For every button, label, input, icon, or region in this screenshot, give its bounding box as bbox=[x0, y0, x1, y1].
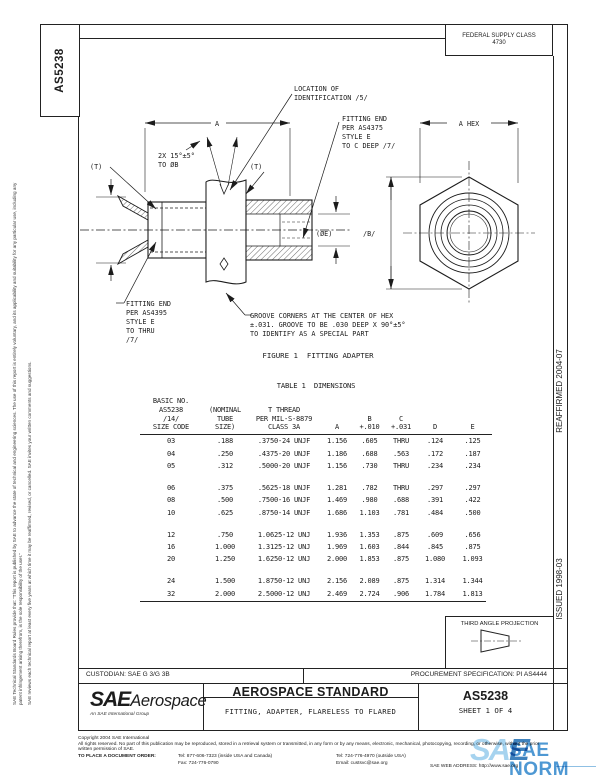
table-cell: 1.281 bbox=[320, 482, 354, 494]
third-angle-projection-box: THIRD ANGLE PROJECTION bbox=[445, 616, 553, 668]
table-cell: .656 bbox=[453, 529, 492, 541]
top-inner-rule bbox=[78, 38, 445, 39]
fitting-end-left-line5: /7/ bbox=[126, 336, 138, 344]
table-cell: 1.156 bbox=[320, 460, 354, 472]
federal-supply-class-box: FEDERAL SUPPLY CLASS 4730 bbox=[445, 24, 553, 56]
table-cell: .875 bbox=[385, 529, 417, 541]
table-cell: .234 bbox=[417, 460, 453, 472]
table-cell: 04 bbox=[140, 448, 202, 460]
table-header-col: A bbox=[320, 423, 354, 432]
table-row: 04.250.4375-20 UNJF1.186.688.563.172.187 bbox=[140, 448, 492, 460]
table-cell: 1.969 bbox=[320, 541, 354, 553]
table-cell: 1.813 bbox=[453, 588, 492, 600]
table-cell: .875 bbox=[385, 575, 417, 587]
table-cell: .375 bbox=[202, 482, 248, 494]
dim-t-right-label: (T) bbox=[250, 163, 262, 171]
title-block-top-rule bbox=[78, 668, 567, 669]
federal-supply-class-number: 4730 bbox=[446, 40, 552, 48]
table-cell: 2.000 bbox=[202, 588, 248, 600]
table-row: 06.375.5625-18 UNJF1.281.782THRU.297.297 bbox=[140, 482, 492, 494]
fax-number: Fax: 724-776-0790 bbox=[178, 761, 219, 767]
reaffirmed-label: REAFFIRMED 2004-07 bbox=[553, 312, 567, 470]
table-cell: THRU bbox=[385, 482, 417, 494]
dia-e-label: (ØE) bbox=[316, 230, 332, 238]
figure-caption: FIGURE 1 FITTING ADAPTER bbox=[262, 351, 374, 360]
table-header-col: D bbox=[417, 423, 453, 432]
table-cell: .688 bbox=[385, 494, 417, 506]
table-row: 05.312.5000-20 UNJF1.156.730THRU.234.234 bbox=[140, 460, 492, 472]
table-cell: 1.344 bbox=[453, 575, 492, 587]
table-header-col: (NOMINALTUBESIZE) bbox=[202, 406, 248, 432]
table-cell: 1.156 bbox=[320, 435, 354, 447]
table-group-gap bbox=[140, 566, 492, 576]
table-header-col: E bbox=[453, 423, 492, 432]
table-cell: 03 bbox=[140, 435, 202, 447]
chamfer-note-line2: TO ØB bbox=[158, 161, 178, 169]
aerospace-logo-text: Aerospace bbox=[130, 692, 206, 710]
dim-a-label: A bbox=[215, 120, 219, 128]
watermark-underline bbox=[556, 766, 596, 767]
table-cell: 2.724 bbox=[354, 588, 385, 600]
table-cell: 24 bbox=[140, 575, 202, 587]
table-cell: .844 bbox=[385, 541, 417, 553]
disclaimer-paragraph-1: SAE Technical Standards Board Rules prov… bbox=[12, 178, 23, 705]
table-cell: .906 bbox=[385, 588, 417, 600]
table-cell: .750 bbox=[202, 529, 248, 541]
table-cell: .391 bbox=[417, 494, 453, 506]
table-cell: .875 bbox=[385, 553, 417, 565]
standard-type-heading: AEROSPACE STANDARD bbox=[203, 685, 418, 699]
document-number: AS5238 bbox=[418, 689, 553, 703]
order-label: TO PLACE A DOCUMENT ORDER: bbox=[78, 754, 156, 760]
table-title: TABLE 1 DIMENSIONS bbox=[140, 381, 492, 390]
groove-note-line2: ±.031. GROOVE TO BE .030 DEEP X 90°±5° bbox=[250, 321, 406, 329]
dimensions-table-header-row: BASIC NO.AS5238/14/SIZE CODE(NOMINALTUBE… bbox=[140, 397, 492, 435]
doc-number-side-label: AS5238 bbox=[41, 25, 79, 116]
table-cell: .845 bbox=[417, 541, 453, 553]
table-cell: .188 bbox=[202, 435, 248, 447]
table-cell: 1.353 bbox=[354, 529, 385, 541]
table-cell: 12 bbox=[140, 529, 202, 541]
table-cell: 1.3125-12 UNJ bbox=[248, 541, 320, 553]
table-row: 201.2501.6250-12 UNJ2.0001.853.8751.0801… bbox=[140, 553, 492, 565]
fitting-end-left-line2: PER AS4395 bbox=[126, 309, 167, 317]
table-header-col: C+.031 bbox=[385, 415, 417, 433]
procurement-label: PROCUREMENT SPECIFICATION: PI AS4444 bbox=[303, 671, 547, 678]
table-cell: .172 bbox=[417, 448, 453, 460]
table-cell: .875 bbox=[453, 541, 492, 553]
table-cell: .187 bbox=[453, 448, 492, 460]
location-note-line1: LOCATION OF bbox=[294, 85, 339, 93]
table-cell: .688 bbox=[354, 448, 385, 460]
table-cell: 1.000 bbox=[202, 541, 248, 553]
tel-intl: Tel: 724-776-4970 (outside USA) bbox=[336, 754, 406, 760]
table-cell: 1.0625-12 UNJ bbox=[248, 529, 320, 541]
table-row: 322.0002.5000-12 UNJ2.4692.724.9061.7841… bbox=[140, 588, 492, 600]
table-cell: 32 bbox=[140, 588, 202, 600]
table-cell: 1.603 bbox=[354, 541, 385, 553]
table-cell: .500 bbox=[202, 494, 248, 506]
table-cell: .125 bbox=[453, 435, 492, 447]
table-cell: 1.186 bbox=[320, 448, 354, 460]
table-bottom-rule bbox=[140, 601, 486, 602]
table-cell: 2.5000-12 UNJ bbox=[248, 588, 320, 600]
table-cell: .609 bbox=[417, 529, 453, 541]
table-cell: 20 bbox=[140, 553, 202, 565]
table-cell: 1.936 bbox=[320, 529, 354, 541]
table-cell: .4375-20 UNJF bbox=[248, 448, 320, 460]
table-header-col: T THREADPER MIL-S-8879CLASS 3A bbox=[248, 406, 320, 432]
table-row: 161.0001.3125-12 UNJ1.9691.603.844.845.8… bbox=[140, 541, 492, 553]
dimensions-table-body: 03.188.3750-24 UNJF1.156.605THRU.124.125… bbox=[140, 435, 492, 600]
groove-note-line1: GROOVE CORNERS AT THE CENTER OF HEX bbox=[250, 312, 394, 320]
table-cell: 08 bbox=[140, 494, 202, 506]
table-cell: 1.8750-12 UNJ bbox=[248, 575, 320, 587]
sheet-number: SHEET 1 OF 4 bbox=[418, 706, 553, 715]
tel-us: Tel: 877-606-7323 (inside USA and Canada… bbox=[178, 754, 272, 760]
sae-aerospace-logo: SAEAerospace An SAE International Group bbox=[90, 688, 206, 717]
doc-number-side-box: AS5238 bbox=[40, 24, 80, 117]
table-cell: 1.093 bbox=[453, 553, 492, 565]
table-group-gap bbox=[140, 472, 492, 482]
center-hex-section bbox=[206, 180, 246, 284]
fitting-end-left-line1: FITTING END bbox=[126, 300, 171, 308]
table-cell: 16 bbox=[140, 541, 202, 553]
table-cell: .8750-14 UNJF bbox=[248, 507, 320, 519]
flare-wall-bottom bbox=[118, 240, 148, 264]
table-cell: .7500-16 UNJF bbox=[248, 494, 320, 506]
sae-norm-watermark: SAE NORM bbox=[509, 741, 600, 779]
table-row: 241.5001.8750-12 UNJ2.1562.089.8751.3141… bbox=[140, 575, 492, 587]
sae-logo-text: SAE bbox=[90, 688, 130, 711]
table-cell: .234 bbox=[453, 460, 492, 472]
document-title: FITTING, ADAPTER, FLARELESS TO FLARED bbox=[203, 707, 418, 716]
fitting-end-right-line1: FITTING END bbox=[342, 115, 387, 123]
table-cell: .312 bbox=[202, 460, 248, 472]
location-note-line2: IDENTIFICATION /5/ bbox=[294, 94, 368, 102]
table-cell: 06 bbox=[140, 482, 202, 494]
table-header-col: B+.010 bbox=[354, 415, 385, 433]
fitting-end-left-line3: STYLE E bbox=[126, 318, 155, 326]
table-cell: .730 bbox=[354, 460, 385, 472]
email-address: Email: custsvc@sae.org bbox=[336, 761, 388, 767]
federal-supply-class-label: FEDERAL SUPPLY CLASS bbox=[446, 33, 552, 41]
custodian-label: CUSTODIAN: SAE G 3/G 3B bbox=[86, 671, 170, 678]
third-angle-projection-symbol bbox=[465, 627, 535, 655]
table-cell: .625 bbox=[202, 507, 248, 519]
groove-note-line3: TO IDENTIFY AS A SPECIAL PART bbox=[250, 330, 369, 338]
table-cell: 10 bbox=[140, 507, 202, 519]
table-cell: THRU bbox=[385, 435, 417, 447]
fitting-end-right-line2: PER AS4375 bbox=[342, 124, 383, 132]
table-cell: .5000-20 UNJF bbox=[248, 460, 320, 472]
dim-t-left-label: (T) bbox=[90, 163, 102, 171]
table-row: 10.625.8750-14 UNJF1.6861.103.781.484.50… bbox=[140, 507, 492, 519]
table-row: 03.188.3750-24 UNJF1.156.605THRU.124.125 bbox=[140, 435, 492, 447]
dim-b-label: /B/ bbox=[363, 230, 375, 238]
table-cell: 1.250 bbox=[202, 553, 248, 565]
table-cell: 1.469 bbox=[320, 494, 354, 506]
table-cell: 1.6250-12 UNJ bbox=[248, 553, 320, 565]
dimensions-table: TABLE 1 DIMENSIONS BASIC NO.AS5238/14/SI… bbox=[140, 381, 492, 602]
table-row: 12.7501.0625-12 UNJ1.9361.353.875.609.65… bbox=[140, 529, 492, 541]
dim-a-hex-label: A HEX bbox=[459, 120, 480, 128]
table-cell: 2.156 bbox=[320, 575, 354, 587]
disclaimer-paragraph-2: SAE reviews each technical report at lea… bbox=[27, 178, 33, 705]
end-view-drawing bbox=[386, 123, 535, 305]
fitting-end-right-line3: STYLE E bbox=[342, 133, 371, 141]
fitting-end-right-line4: TO C DEEP /7/ bbox=[342, 142, 395, 150]
table-cell: THRU bbox=[385, 460, 417, 472]
table-cell: .124 bbox=[417, 435, 453, 447]
table-cell: .484 bbox=[417, 507, 453, 519]
chamfer-note-line1: 2X 15°±5° bbox=[158, 152, 195, 160]
fitting-end-left-line4: TO THRU bbox=[126, 327, 155, 335]
table-cell: 1.500 bbox=[202, 575, 248, 587]
table-row: 08.500.7500-16 UNJF1.469.980.688.391.422 bbox=[140, 494, 492, 506]
table-cell: .5625-18 UNJF bbox=[248, 482, 320, 494]
table-cell: 2.469 bbox=[320, 588, 354, 600]
figure-1-drawing: A (T) (T) 2X 15°±5° TO ØB LOCATION OF ID… bbox=[78, 55, 553, 385]
table-group-gap bbox=[140, 519, 492, 529]
table-cell: .563 bbox=[385, 448, 417, 460]
table-cell: 1.103 bbox=[354, 507, 385, 519]
title-block-mid-rule bbox=[78, 683, 567, 684]
table-cell: .781 bbox=[385, 507, 417, 519]
logo-subtitle: An SAE International Group bbox=[90, 712, 206, 717]
table-cell: 1.080 bbox=[417, 553, 453, 565]
table-cell: .500 bbox=[453, 507, 492, 519]
table-cell: 1.314 bbox=[417, 575, 453, 587]
table-cell: 1.853 bbox=[354, 553, 385, 565]
flare-wall-top bbox=[118, 196, 148, 220]
table-cell: 1.784 bbox=[417, 588, 453, 600]
table-cell: 2.000 bbox=[320, 553, 354, 565]
table-cell: 05 bbox=[140, 460, 202, 472]
table-cell: .605 bbox=[354, 435, 385, 447]
issued-label: ISSUED 1998-03 bbox=[553, 528, 567, 650]
table-cell: .250 bbox=[202, 448, 248, 460]
table-cell: .422 bbox=[453, 494, 492, 506]
table-cell: 2.089 bbox=[354, 575, 385, 587]
table-cell: .297 bbox=[453, 482, 492, 494]
table-cell: .782 bbox=[354, 482, 385, 494]
table-cell: 1.686 bbox=[320, 507, 354, 519]
table-header-col: BASIC NO.AS5238/14/SIZE CODE bbox=[140, 397, 202, 432]
table-cell: .3750-24 UNJF bbox=[248, 435, 320, 447]
table-cell: .297 bbox=[417, 482, 453, 494]
table-cell: .980 bbox=[354, 494, 385, 506]
watermark-sa: SA bbox=[470, 732, 509, 767]
